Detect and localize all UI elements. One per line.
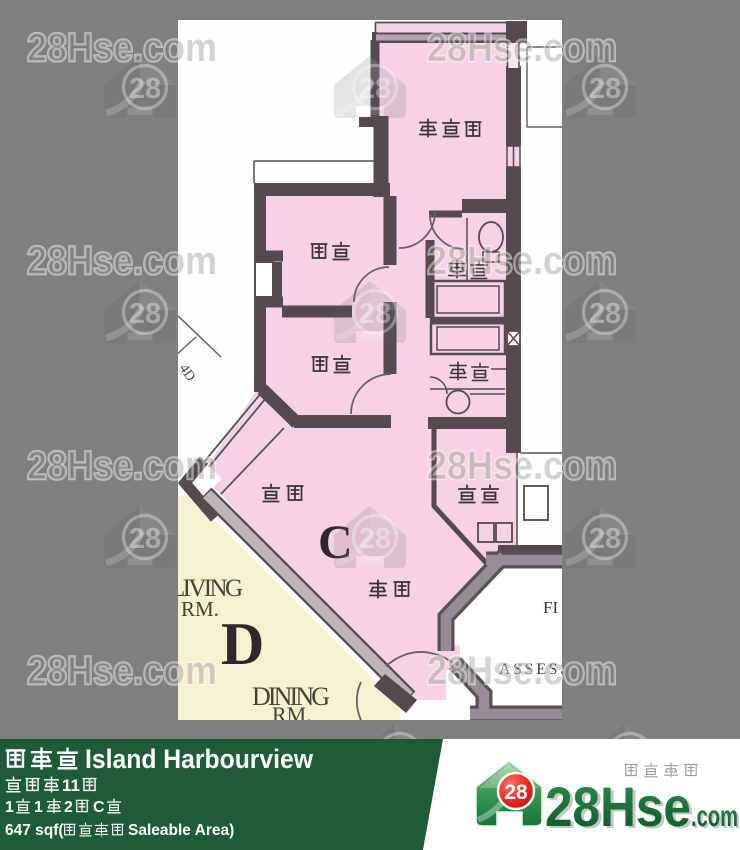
- svg-text:28Hse.com: 28Hse.com: [27, 26, 217, 70]
- svg-text:11: 11: [62, 776, 80, 795]
- svg-text:28Hse.com: 28Hse.com: [27, 649, 217, 693]
- svg-text:28Hse.com: 28Hse.com: [27, 239, 217, 283]
- svg-text:RM.: RM.: [181, 597, 219, 621]
- svg-text:D: D: [221, 611, 264, 677]
- svg-text:1: 1: [34, 799, 43, 816]
- svg-text:28: 28: [504, 781, 528, 804]
- svg-text:Island Harbourview: Island Harbourview: [85, 744, 314, 774]
- svg-text:28Hse.com: 28Hse.com: [427, 239, 617, 283]
- svg-text:28Hse.com: 28Hse.com: [427, 26, 617, 70]
- svg-text:28Hse.com: 28Hse.com: [427, 444, 617, 488]
- svg-text:2: 2: [64, 799, 73, 816]
- svg-text:1: 1: [5, 799, 14, 816]
- svg-text:647 sqf(: 647 sqf(: [5, 822, 64, 839]
- svg-text:C: C: [93, 799, 105, 816]
- svg-text:FI: FI: [543, 598, 558, 617]
- svg-text:.com: .com: [691, 800, 738, 833]
- svg-text:28Hse: 28Hse: [545, 775, 691, 838]
- svg-text:28Hse.com: 28Hse.com: [27, 444, 217, 488]
- svg-text:28Hse.com: 28Hse.com: [427, 649, 617, 693]
- svg-text:Saleable Area): Saleable Area): [128, 822, 234, 839]
